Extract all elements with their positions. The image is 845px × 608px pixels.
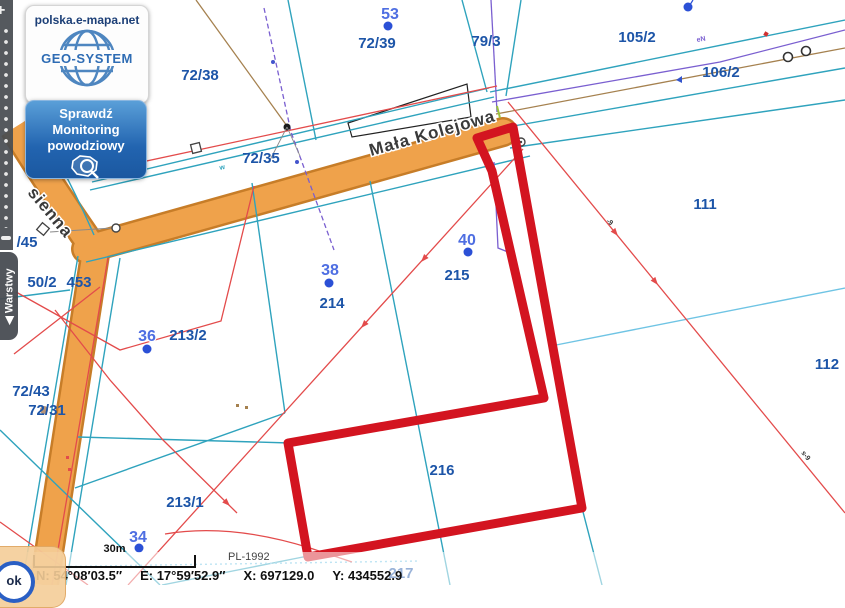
flood-button-line2: Monitoring (26, 122, 146, 138)
layers-panel-tab[interactable]: ◀ Warstwy (0, 252, 18, 340)
coordinates-readout: N: 54°08′03.5″E: 17°59′52.9″X: 697129.0Y… (36, 568, 420, 583)
parcel-number-label: 214 (319, 295, 345, 312)
address-number-label: 53 (381, 6, 399, 23)
parcel-number-label: 72/38 (181, 67, 219, 84)
address-point-dot (684, 3, 693, 12)
parcel-number-label: 111 (693, 196, 716, 213)
parcel-number-label: 105/2 (618, 29, 656, 46)
parcel-number-label: 72/35 (242, 150, 280, 167)
address-number-label: 38 (321, 262, 339, 279)
utility-node (295, 160, 299, 164)
zoom-out-icon[interactable] (1, 236, 11, 240)
parcel-number-label: 106/2 (702, 64, 740, 81)
zoom-toolbar: + (0, 0, 13, 250)
parcel-number-label: /45 (17, 234, 38, 251)
parcel-number-label: 79/3 (471, 33, 500, 50)
coord-e: E: 17°59′52.9″ (140, 568, 225, 583)
coord-y: Y: 434552.9 (332, 568, 402, 583)
site-title: polska.e-mapa.net (26, 13, 148, 27)
parcel-number-label: 213/2 (169, 327, 207, 344)
parcel-number-label: 72/39 (358, 35, 396, 52)
parcel-number-label: 112 (815, 356, 839, 373)
parcel-number-label: 72/43 (12, 383, 50, 400)
address-number-label: 36 (138, 328, 156, 345)
poland-magnifier-icon (69, 154, 103, 180)
parcel-number-label: 72/31 (28, 402, 66, 419)
flood-button-line1: Sprawdź (26, 106, 146, 122)
zoom-slider[interactable] (0, 26, 13, 228)
layers-tab-label: ◀ Warstwy (3, 257, 16, 337)
parcel-number-label: 215 (444, 267, 469, 284)
logo-panel[interactable]: polska.e-mapa.net GEO-SYSTEM (25, 5, 149, 104)
geo-system-wordmark: GEO-SYSTEM (41, 51, 133, 66)
address-point-dot (143, 345, 152, 354)
crs-label: PL-1992 (228, 551, 270, 563)
address-point-dot (325, 279, 334, 288)
parcel-number-label: 453 (66, 274, 91, 291)
parcel-number-label: 213/1 (166, 494, 204, 511)
coord-x: X: 697129.0 (243, 568, 314, 583)
parcel-number-label: 50/2 (27, 274, 56, 291)
address-number-label: 40 (458, 232, 476, 249)
parcel-number-label: 216 (429, 462, 454, 479)
zoom-in-icon[interactable]: + (0, 2, 5, 20)
flood-monitoring-button[interactable]: Sprawdź Monitoring powodziowy (25, 100, 147, 179)
geo-system-logo-icon: GEO-SYSTEM (39, 27, 135, 89)
utility-node (271, 60, 275, 64)
flood-button-line3: powodziowy (26, 138, 146, 154)
